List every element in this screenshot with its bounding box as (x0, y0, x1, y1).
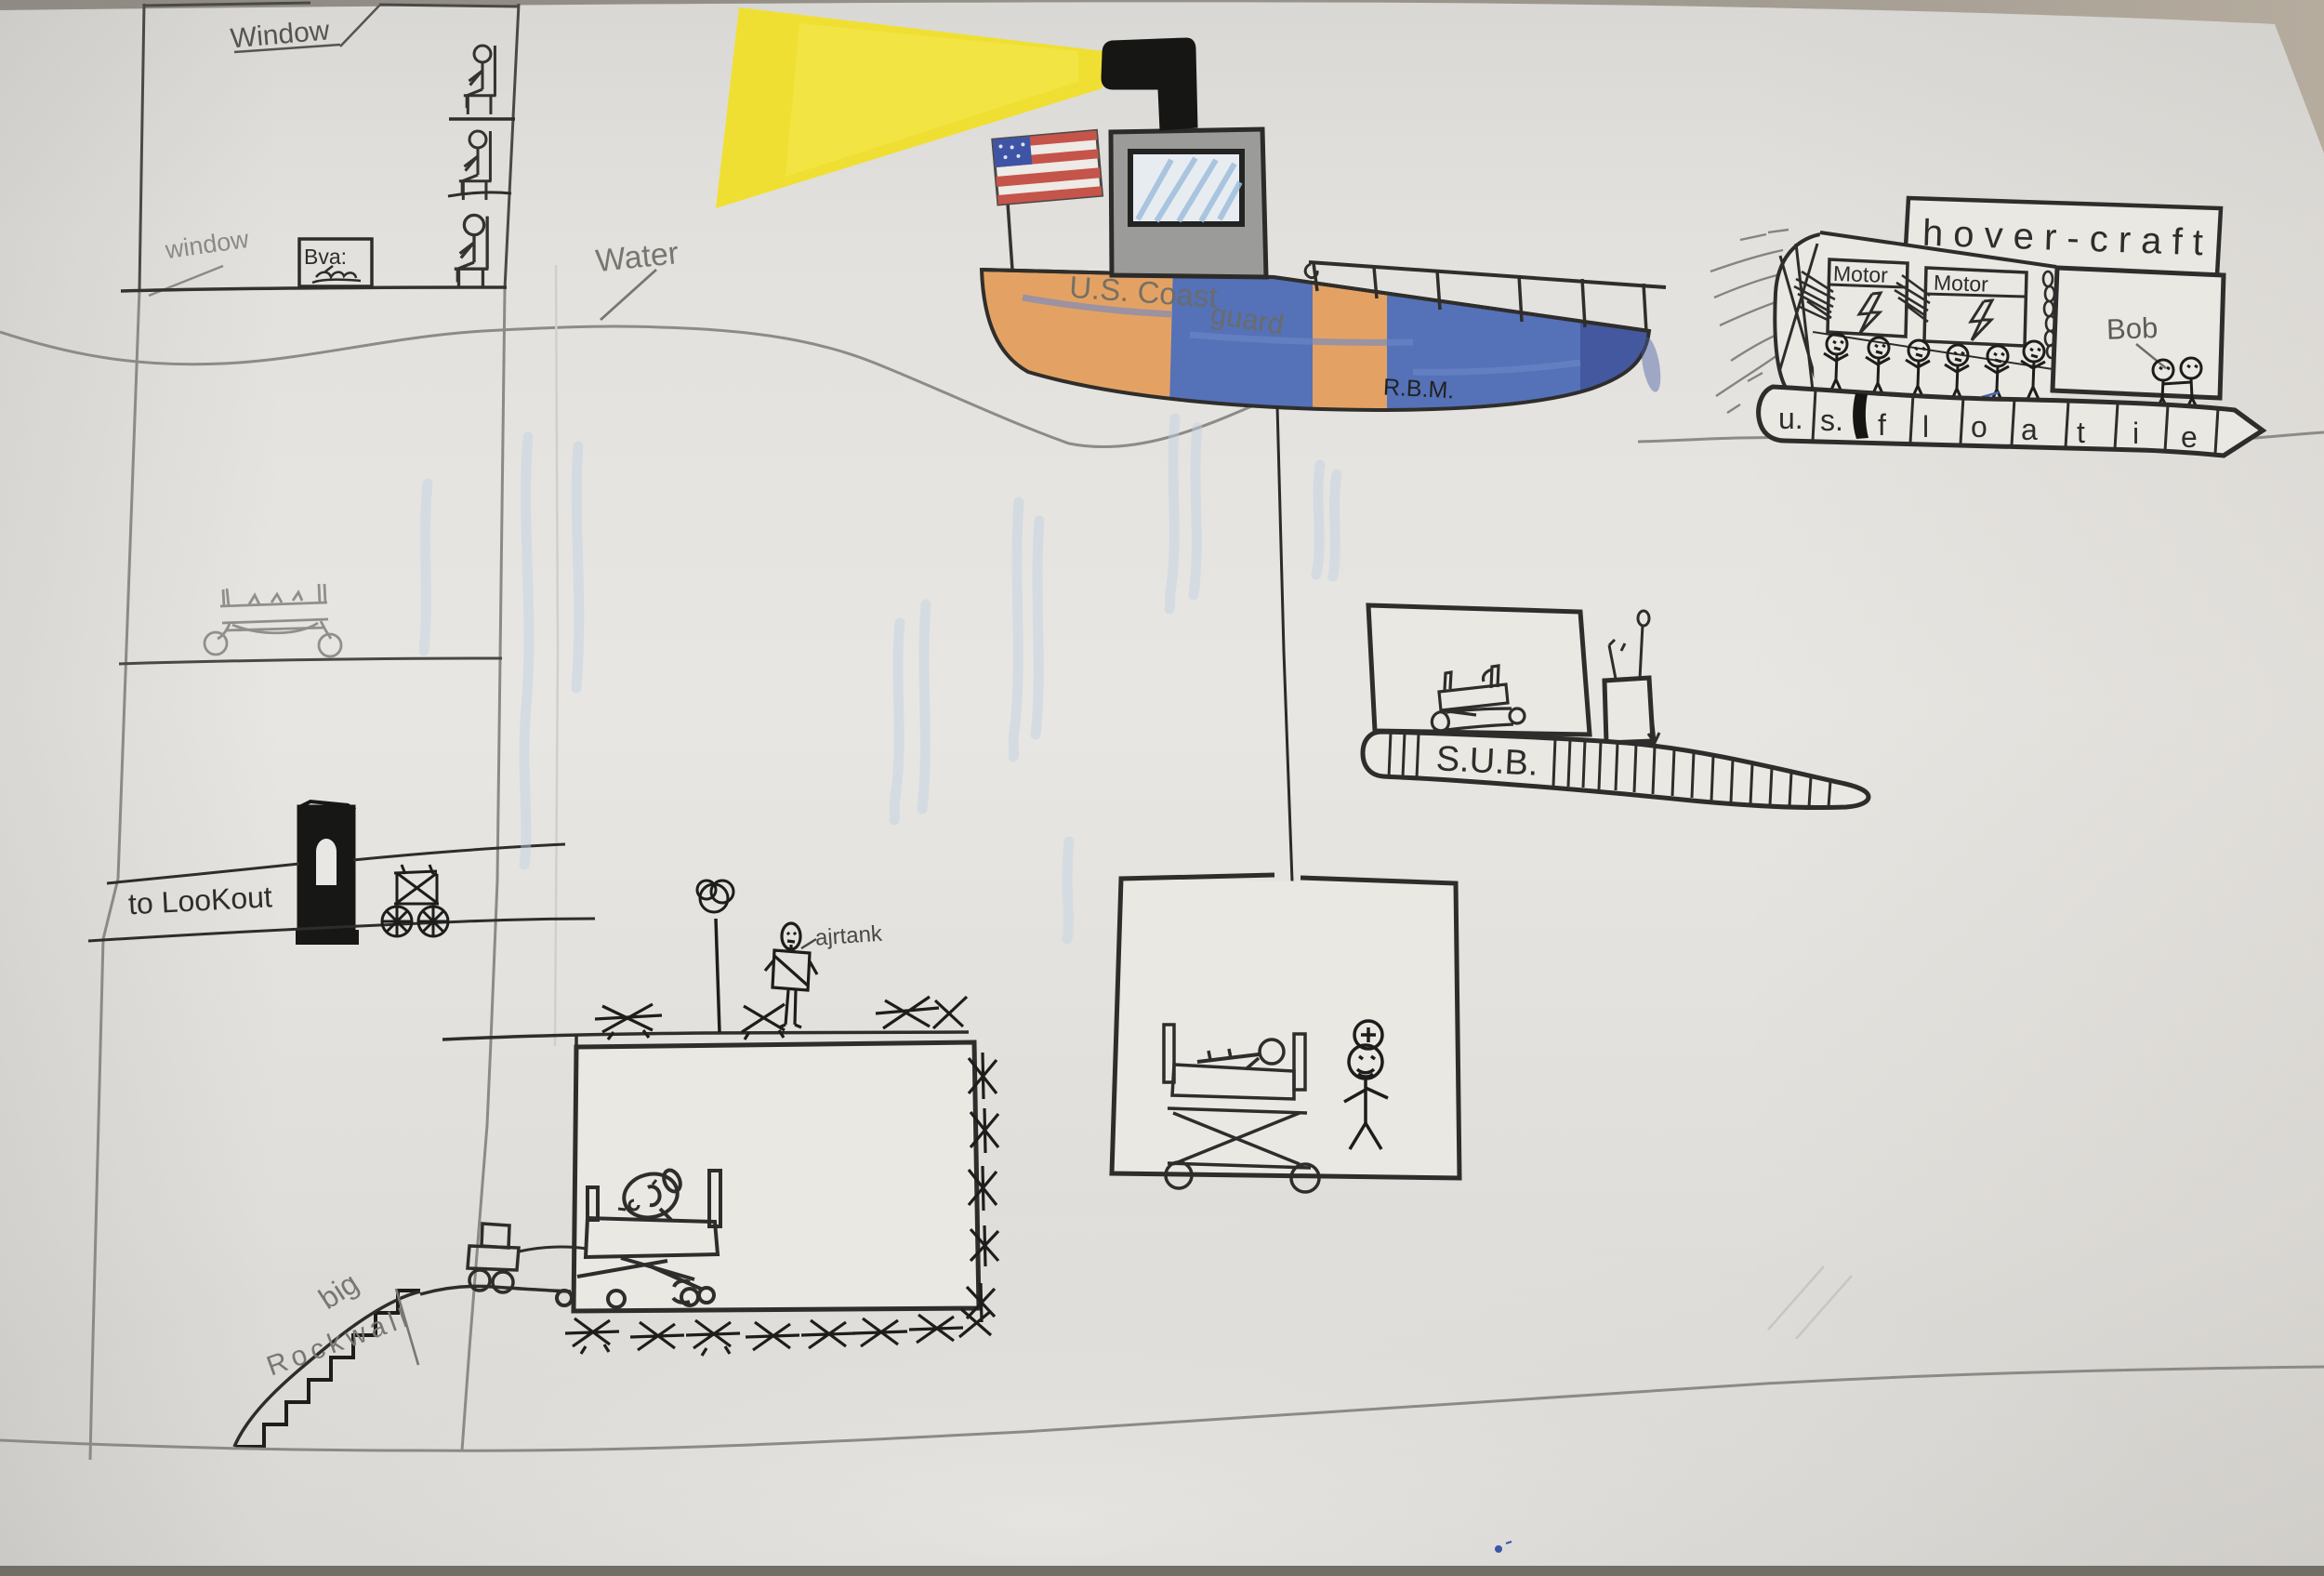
svg-text:s.: s. (1820, 404, 1843, 437)
svg-text:u.: u. (1778, 402, 1803, 435)
svg-text:Bob: Bob (2106, 311, 2158, 346)
svg-text:t: t (2077, 416, 2085, 449)
svg-text:ajrtank: ajrtank (814, 921, 884, 951)
svg-text:f: f (1878, 408, 1886, 442)
svg-text:Bva:: Bva: (304, 245, 347, 269)
svg-text:S.U.B.: S.U.B. (1435, 739, 1539, 784)
svg-text:Motor: Motor (1934, 271, 1989, 297)
svg-text:R.B.M.: R.B.M. (1382, 374, 1455, 404)
svg-text:e: e (2181, 420, 2198, 454)
svg-text:o: o (1971, 410, 1987, 444)
svg-text:Motor: Motor (1833, 261, 1889, 287)
svg-text:i: i (2133, 417, 2139, 450)
svg-text:a: a (2021, 413, 2038, 446)
svg-text:l: l (1922, 410, 1929, 444)
